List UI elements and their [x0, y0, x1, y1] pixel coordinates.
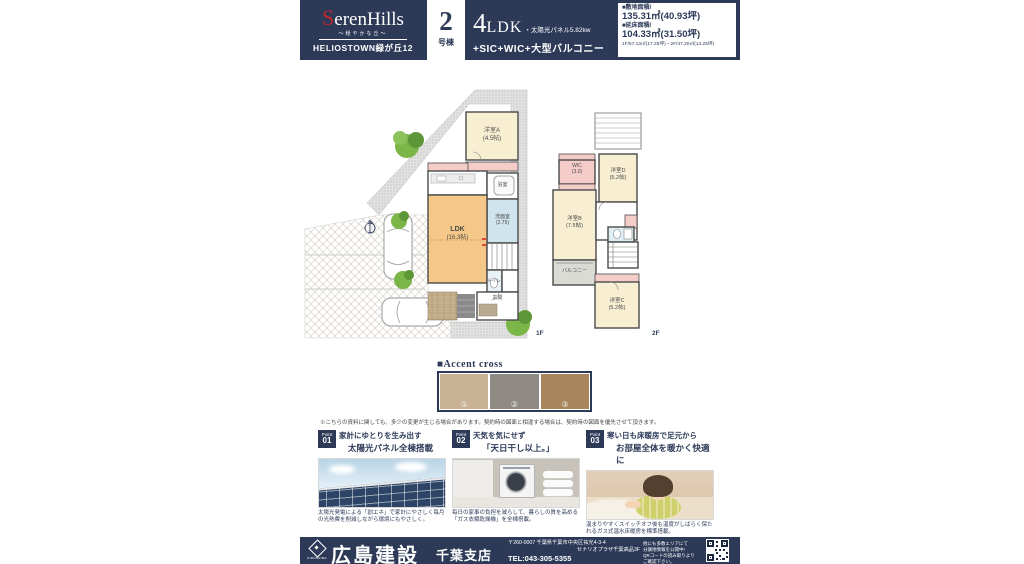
room-label-1f-washroom: 洗面室(2.75): [487, 214, 518, 227]
plan-type: LDK: [487, 19, 523, 37]
branch-name: 千葉支店: [436, 545, 492, 564]
brand-name: SerenHills: [300, 7, 426, 29]
solar-panels: [318, 477, 446, 508]
flyer-page: SerenHills 〜穏やかな丘〜 HELIOSTOWN緑が丘12 2 号棟 …: [0, 0, 1024, 564]
point-1-title: 家計にゆとりを生み出す 太陽光パネル全棟搭載: [339, 430, 433, 454]
qr-promo-text: 他にも多数エリアにて 分譲地情報を公開中! QRコードの読み取りより ご確認下さ…: [643, 541, 703, 564]
brand-series: HELIOSTOWN緑が丘12: [300, 42, 426, 54]
gas-dryer-photo: [452, 458, 580, 508]
accent-cross-swatches: ① ② ③: [437, 371, 592, 412]
footer-bar: HIROSHIMA 広島建設 千葉支店 〒260-0007 千葉県千葉市中央区祐…: [300, 537, 740, 564]
area-info-box: ■敷地面積/ 135.31㎡(40.93坪) ■延床面積/ 104.33㎡(31…: [618, 3, 736, 57]
company-name: 広島建設: [331, 539, 419, 564]
plan-type-box: 4 LDK ・太陽光パネル5.82kw +SIC+WIC+大型バルコニー: [466, 0, 616, 60]
brand-rest: erenHills: [334, 9, 404, 30]
unit-number: 2: [427, 8, 465, 35]
child-on-floor-photo: [586, 470, 714, 520]
solar-roof-photo: [318, 458, 446, 508]
room-label-2f-room-c: 洋室C(5.2帖): [595, 298, 639, 312]
swatch-3: ③: [541, 374, 589, 409]
towel-stack: [543, 471, 573, 497]
flyer-content: SerenHills 〜穏やかな丘〜 HELIOSTOWN緑が丘12 2 号棟 …: [300, 0, 740, 564]
room-label-2f-balcony: バルコニー: [553, 268, 596, 274]
point-2-badge: Point 02: [452, 430, 470, 448]
point-1-caption: 太陽光発電による「創エネ」で家計にやさしく毎月の光熱費を削減しながら環境にもやさ…: [318, 510, 446, 524]
point-1-badge: Point 01: [318, 430, 336, 448]
room-label-1f-ldk: LDK(16.3帖): [428, 226, 487, 242]
logo-mark-text: HIROSHIMA: [307, 556, 327, 560]
company-address: 〒260-0007 千葉県千葉市中央区祐光4-3-4 セナリオプラザ千葉高品3F…: [508, 540, 640, 563]
plan-solar-note: ・太陽光パネル5.82kw: [524, 24, 590, 34]
unit-suffix: 号棟: [427, 37, 465, 48]
floor-label-2f: 2F: [652, 330, 660, 337]
logo-divider: [319, 39, 407, 40]
floorplan-1f: 洋室A(4.5帖) LDK(16.3帖) 浴室 洗面室(2.75) トイレ 玄関: [303, 88, 545, 340]
phone-number: TEL:043-305-5355: [508, 554, 640, 563]
gas-dryer: [499, 464, 535, 498]
floor-area-detail: 1F/57.13㎡(17.25坪)・2F/47.20㎡(14.25坪): [622, 42, 732, 48]
brand-initial: S: [322, 5, 334, 30]
floor-label-1f: 1F: [536, 330, 544, 337]
floorplan-section: 洋室A(4.5帖) LDK(16.3帖) 浴室 洗面室(2.75) トイレ 玄関: [300, 60, 740, 360]
room-label-1f-bath: 浴室: [487, 182, 518, 188]
hiroshima-kensetsu-logo-icon: HIROSHIMA: [307, 540, 327, 560]
point-3-caption: 温まりやすくスイッチオフ後も温度がしばらく保たれるガス式温水床暖房を標準搭載。: [586, 522, 714, 536]
room-label-1f-room-a: 洋室A(4.5帖): [466, 128, 518, 143]
room-label-2f-room-d: 洋室D(5.2帖): [599, 168, 637, 182]
room-label-2f-wic: WIC(3.0): [559, 163, 595, 176]
accent-cross-title: ■Accent cross: [437, 359, 503, 370]
point-card-floor-heating: Point 03 寒い日も床暖房で足元から お部屋全体を暖かく快適に 温まりやす…: [586, 430, 714, 536]
room-label-2f-room-b: 洋室B(7.5帖): [553, 216, 596, 230]
point-2-caption: 毎日の家事の負担を減らして、暮らしの質を高める「ガス衣類乾燥機」を全棟搭載。: [452, 510, 580, 524]
swatch-2-label: ②: [490, 400, 538, 409]
point-2-title: 天気を気にせず 「天日干し以上。」: [473, 430, 554, 454]
swatch-1-label: ①: [440, 400, 488, 409]
room-label-1f-entrance: 玄関: [477, 295, 518, 301]
point-card-solar: Point 01 家計にゆとりを生み出す 太陽光パネル全棟搭載 太陽光発電による…: [318, 430, 446, 524]
point-3-badge: Point 03: [586, 430, 604, 448]
swatch-3-label: ③: [541, 400, 589, 409]
unit-number-box: 2 号棟: [427, 0, 465, 60]
address-line2: セナリオプラザ千葉高品3F: [508, 547, 640, 554]
swatch-2: ②: [490, 374, 538, 409]
brand-logo: SerenHills 〜穏やかな丘〜 HELIOSTOWN緑が丘12: [300, 0, 426, 60]
disclaimer-text: ※こちらの資料に関しても、多少の変更が生じる場合があります。契約時の図面と相違す…: [320, 418, 732, 426]
brand-tagline: 〜穏やかな丘〜: [300, 30, 426, 37]
plan-features: +SIC+WIC+大型バルコニー: [473, 40, 616, 55]
room-label-1f-toilet: トイレ: [485, 278, 503, 284]
qr-code: [706, 539, 729, 562]
point-3-title: 寒い日も床暖房で足元から お部屋全体を暖かく快適に: [607, 430, 714, 466]
header-bar: SerenHills 〜穏やかな丘〜 HELIOSTOWN緑が丘12 2 号棟 …: [300, 0, 740, 60]
swatch-1: ①: [440, 374, 488, 409]
land-area-value: 135.31㎡(40.93坪): [622, 12, 732, 23]
floorplan-2f: WIC(3.0) 洋室D(5.2帖) 洋室B(7.5帖) バルコニー 洋室C(5…: [550, 88, 707, 340]
plan-number: 4: [473, 10, 487, 37]
point-card-dryer: Point 02 天気を気にせず 「天日干し以上。」 毎日の家事の負担を減らして…: [452, 430, 580, 524]
floor-area-value: 104.33㎡(31.50坪): [622, 30, 732, 41]
